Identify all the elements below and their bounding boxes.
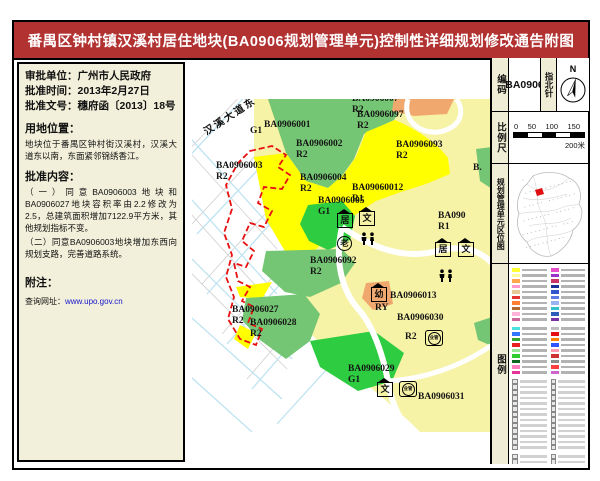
zone-label: G1 <box>250 126 262 137</box>
location-text: 地块位于番禺区钟村街汉溪村，汉溪大道东以南，东面紧邻锦绣香江。 <box>25 138 177 162</box>
legend-item <box>512 327 547 331</box>
zone-label: BA0906092R2 <box>310 256 356 277</box>
location-heading: 用地位置： <box>25 122 177 136</box>
public-toilet-icon <box>437 269 456 283</box>
legend-item <box>512 332 547 336</box>
legend-panel <box>509 264 588 464</box>
legend-symbol-item <box>551 385 586 389</box>
culture-station-icon: 文 <box>458 242 474 257</box>
property-management-icon: 业管 <box>425 330 443 346</box>
zone-label: R2 <box>405 332 417 343</box>
zone-label: BA09060012R1 <box>352 183 403 204</box>
content-item-1: （一）同意BA0906003地块和BA0906027地块容积率由2.2修改为2.… <box>25 186 177 234</box>
legend-symbol-item <box>512 380 547 384</box>
public-toilet-icon <box>359 232 378 246</box>
legend-item <box>512 365 547 369</box>
legend-symbol-item <box>512 424 547 428</box>
legend-symbol-item <box>551 413 586 417</box>
zone-label: BA0906002R2 <box>296 139 342 160</box>
zone-label: BA0906013 <box>390 291 436 302</box>
legend-item <box>551 332 586 336</box>
legend-item <box>551 307 586 311</box>
content-heading: 批准内容： <box>25 170 177 184</box>
approval-doc: 批准文号：穗府函〔2013〕18号 <box>25 99 177 114</box>
legend-item <box>551 354 586 358</box>
legend-symbol-item <box>512 396 547 400</box>
property-management-icon: 业管 <box>399 381 417 397</box>
elderly-station-icon: 老 <box>337 236 352 251</box>
legend-symbol-item <box>551 460 586 464</box>
legend-symbol-item <box>512 455 547 459</box>
legend-symbol-item <box>512 429 547 433</box>
legend-item <box>512 274 547 278</box>
location-minimap <box>509 164 588 263</box>
location-map-row: 规划管理单元区位图 <box>492 164 588 264</box>
legend-symbol-item <box>512 407 547 411</box>
legend-symbol-item <box>512 402 547 406</box>
legend-item <box>551 343 586 347</box>
legend-item <box>551 338 586 342</box>
zone-label: BA0906031 <box>418 392 464 403</box>
legend-item <box>512 349 547 353</box>
north-label-cell: 指北针 <box>541 58 557 111</box>
note-heading: 附注： <box>25 276 177 290</box>
legend-item <box>512 312 547 316</box>
legend-item <box>551 296 586 300</box>
legend-symbol-item <box>512 435 547 439</box>
zone-label: BA0906030 <box>397 313 443 324</box>
legend-symbol-item <box>512 440 547 444</box>
legend-item <box>551 327 586 331</box>
legend-symbol-item <box>551 407 586 411</box>
legend-item <box>512 301 547 305</box>
content-item-2: （二）同意BA0906003地块增加东西向规划支路，完善道路系统。 <box>25 236 177 260</box>
legend-item <box>551 365 586 369</box>
legend-symbol-item <box>512 413 547 417</box>
zone-label: BA0906003R2 <box>216 161 262 182</box>
legend-item <box>551 279 586 283</box>
kindergarten-icon: 幼 <box>371 287 387 302</box>
zone-label: BA0906028R2 <box>250 318 296 339</box>
legend-item <box>512 279 547 283</box>
title-bar: 番禺区钟村镇汉溪村居住地块(BA0906规划管理单元)控制性详细规划修改通告附图 <box>14 22 588 60</box>
legend-symbol-item <box>512 446 547 450</box>
plan-map: 汉溪大道东 BA0906007R2 G1 BA0906001 BA0906002… <box>192 99 492 432</box>
legend-item <box>551 285 586 289</box>
culture-station-icon: 文 <box>359 211 375 226</box>
code-row: 编码 BA0906 指北针 N <box>492 58 588 112</box>
svg-text:N: N <box>570 64 577 74</box>
zone-label: BA090R1 <box>438 211 465 232</box>
info-panel: 审批单位：广州市人民政府 批准时间：2013年2月27日 批准文号：穗府函〔20… <box>17 62 185 462</box>
legend-item <box>512 360 547 364</box>
compass-cell: N <box>557 58 589 111</box>
planning-notice-sheet: 番禺区钟村镇汉溪村居住地块(BA0906规划管理单元)控制性详细规划修改通告附图… <box>0 0 600 481</box>
approval-unit: 审批单位：广州市人民政府 <box>25 69 177 84</box>
legend-symbol-item <box>551 435 586 439</box>
sheet-frame: 番禺区钟村镇汉溪村居住地块(BA0906规划管理单元)控制性详细规划修改通告附图… <box>12 20 590 470</box>
approval-time: 批准时间：2013年2月27日 <box>25 84 177 99</box>
legend-row: 图例 <box>492 264 588 464</box>
legend-item <box>551 268 586 272</box>
unit-code: BA0906 <box>509 58 541 111</box>
legend-symbol-item <box>551 396 586 400</box>
legend-item <box>551 318 586 322</box>
legend-symbol-item <box>551 446 586 450</box>
legend-symbol-item <box>512 460 547 464</box>
legend-item <box>512 338 547 342</box>
scale-bar <box>513 132 585 138</box>
scale-bar-cell: 050 100150 200米 <box>509 112 589 163</box>
legend-item <box>512 268 547 272</box>
legend-symbol-item <box>551 455 586 459</box>
location-map-label-cell: 规划管理单元区位图 <box>492 164 509 263</box>
scale-ticks: 050 100150 <box>514 122 580 131</box>
legend-symbol-item <box>551 391 586 395</box>
zone-label: BA0906004R2 <box>300 173 346 194</box>
zone-label: B. <box>473 163 482 174</box>
legend-item <box>512 296 547 300</box>
page-title: 番禺区钟村镇汉溪村居住地块(BA0906规划管理单元)控制性详细规划修改通告附图 <box>28 30 575 51</box>
legend-item <box>512 343 547 347</box>
north-arrow-icon: N <box>557 62 589 108</box>
legend-symbol-item <box>551 429 586 433</box>
legend-item <box>551 274 586 278</box>
legend-item <box>512 285 547 289</box>
zone-label: BA0906097R2 <box>357 110 403 131</box>
website-url: www.upo.gov.cn <box>65 297 123 306</box>
legend-item <box>512 354 547 358</box>
legend-item <box>512 371 547 375</box>
legend-label-cell: 图例 <box>492 264 509 464</box>
legend-item <box>551 371 586 375</box>
residence-committee-icon: 居 <box>337 213 353 228</box>
zone-label: RY <box>375 303 388 314</box>
legend-item <box>551 312 586 316</box>
legend-item <box>551 349 586 353</box>
legend-symbol-item <box>551 440 586 444</box>
culture-station-icon: 文 <box>377 382 393 397</box>
zone-label: BA0906093R2 <box>396 140 442 161</box>
legend-item <box>512 290 547 294</box>
legend-symbol-item <box>512 385 547 389</box>
legend-item <box>551 360 586 364</box>
legend-item <box>512 307 547 311</box>
legend-symbol-item <box>551 424 586 428</box>
legend-symbol-item <box>512 391 547 395</box>
legend-symbol-item <box>551 402 586 406</box>
zone-label: BA0906001 <box>264 120 310 131</box>
scale-row: 比例尺 050 100150 200米 <box>492 112 588 164</box>
scale-label-cell: 比例尺 <box>492 112 509 163</box>
residence-committee-icon: 居 <box>435 242 451 257</box>
legend-symbol-item <box>512 418 547 422</box>
legend-item <box>512 318 547 322</box>
sidebar: 编码 BA0906 指北针 N 比例尺 050 100150 <box>490 58 588 464</box>
legend-item <box>551 301 586 305</box>
legend-symbol-item <box>551 418 586 422</box>
legend-symbol-item <box>551 380 586 384</box>
website-line: 查询网址：www.upo.gov.cn <box>25 296 177 307</box>
legend-item <box>551 290 586 294</box>
scale-unit: 200米 <box>513 140 585 151</box>
